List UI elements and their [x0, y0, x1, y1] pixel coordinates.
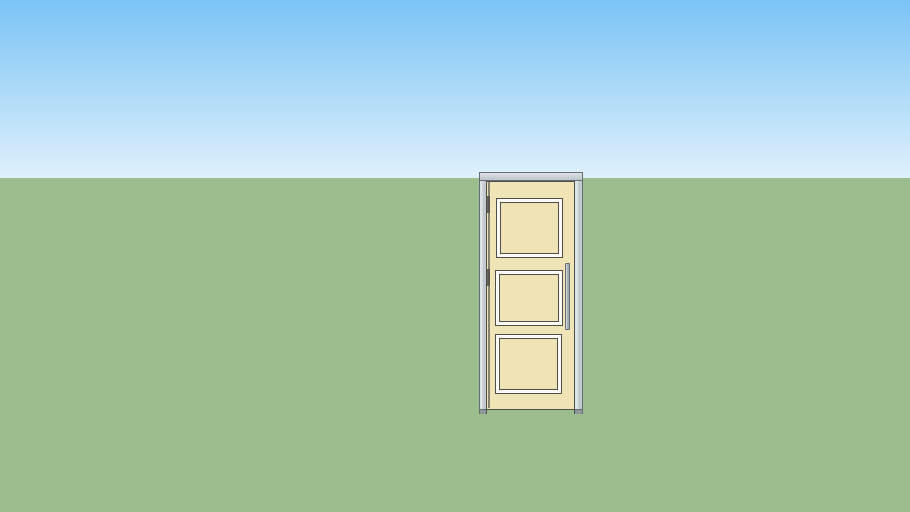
door-model[interactable] — [479, 172, 585, 415]
door-handle — [565, 263, 570, 330]
door-panel-bottom — [495, 334, 562, 394]
door-hinge-middle — [487, 269, 490, 286]
door-frame-lintel — [479, 172, 583, 181]
model-viewport[interactable] — [0, 0, 910, 512]
door-panel-middle — [495, 270, 563, 326]
ground-plane — [0, 178, 910, 512]
door-frame-jamb-right — [574, 174, 583, 414]
door-hinge-top — [487, 196, 490, 213]
door-slab — [487, 181, 574, 410]
door-frame-foot-left — [480, 409, 486, 414]
door-panel-bottom-inset — [499, 338, 558, 390]
door-panel-top-inset — [500, 202, 559, 254]
door-hinge-stile-line — [488, 182, 490, 408]
door-frame-jamb-left — [479, 174, 487, 414]
door-panel-middle-inset — [499, 274, 559, 322]
door-frame-foot-right — [575, 409, 582, 414]
door-panel-top — [496, 198, 563, 258]
sky-backdrop — [0, 0, 910, 178]
